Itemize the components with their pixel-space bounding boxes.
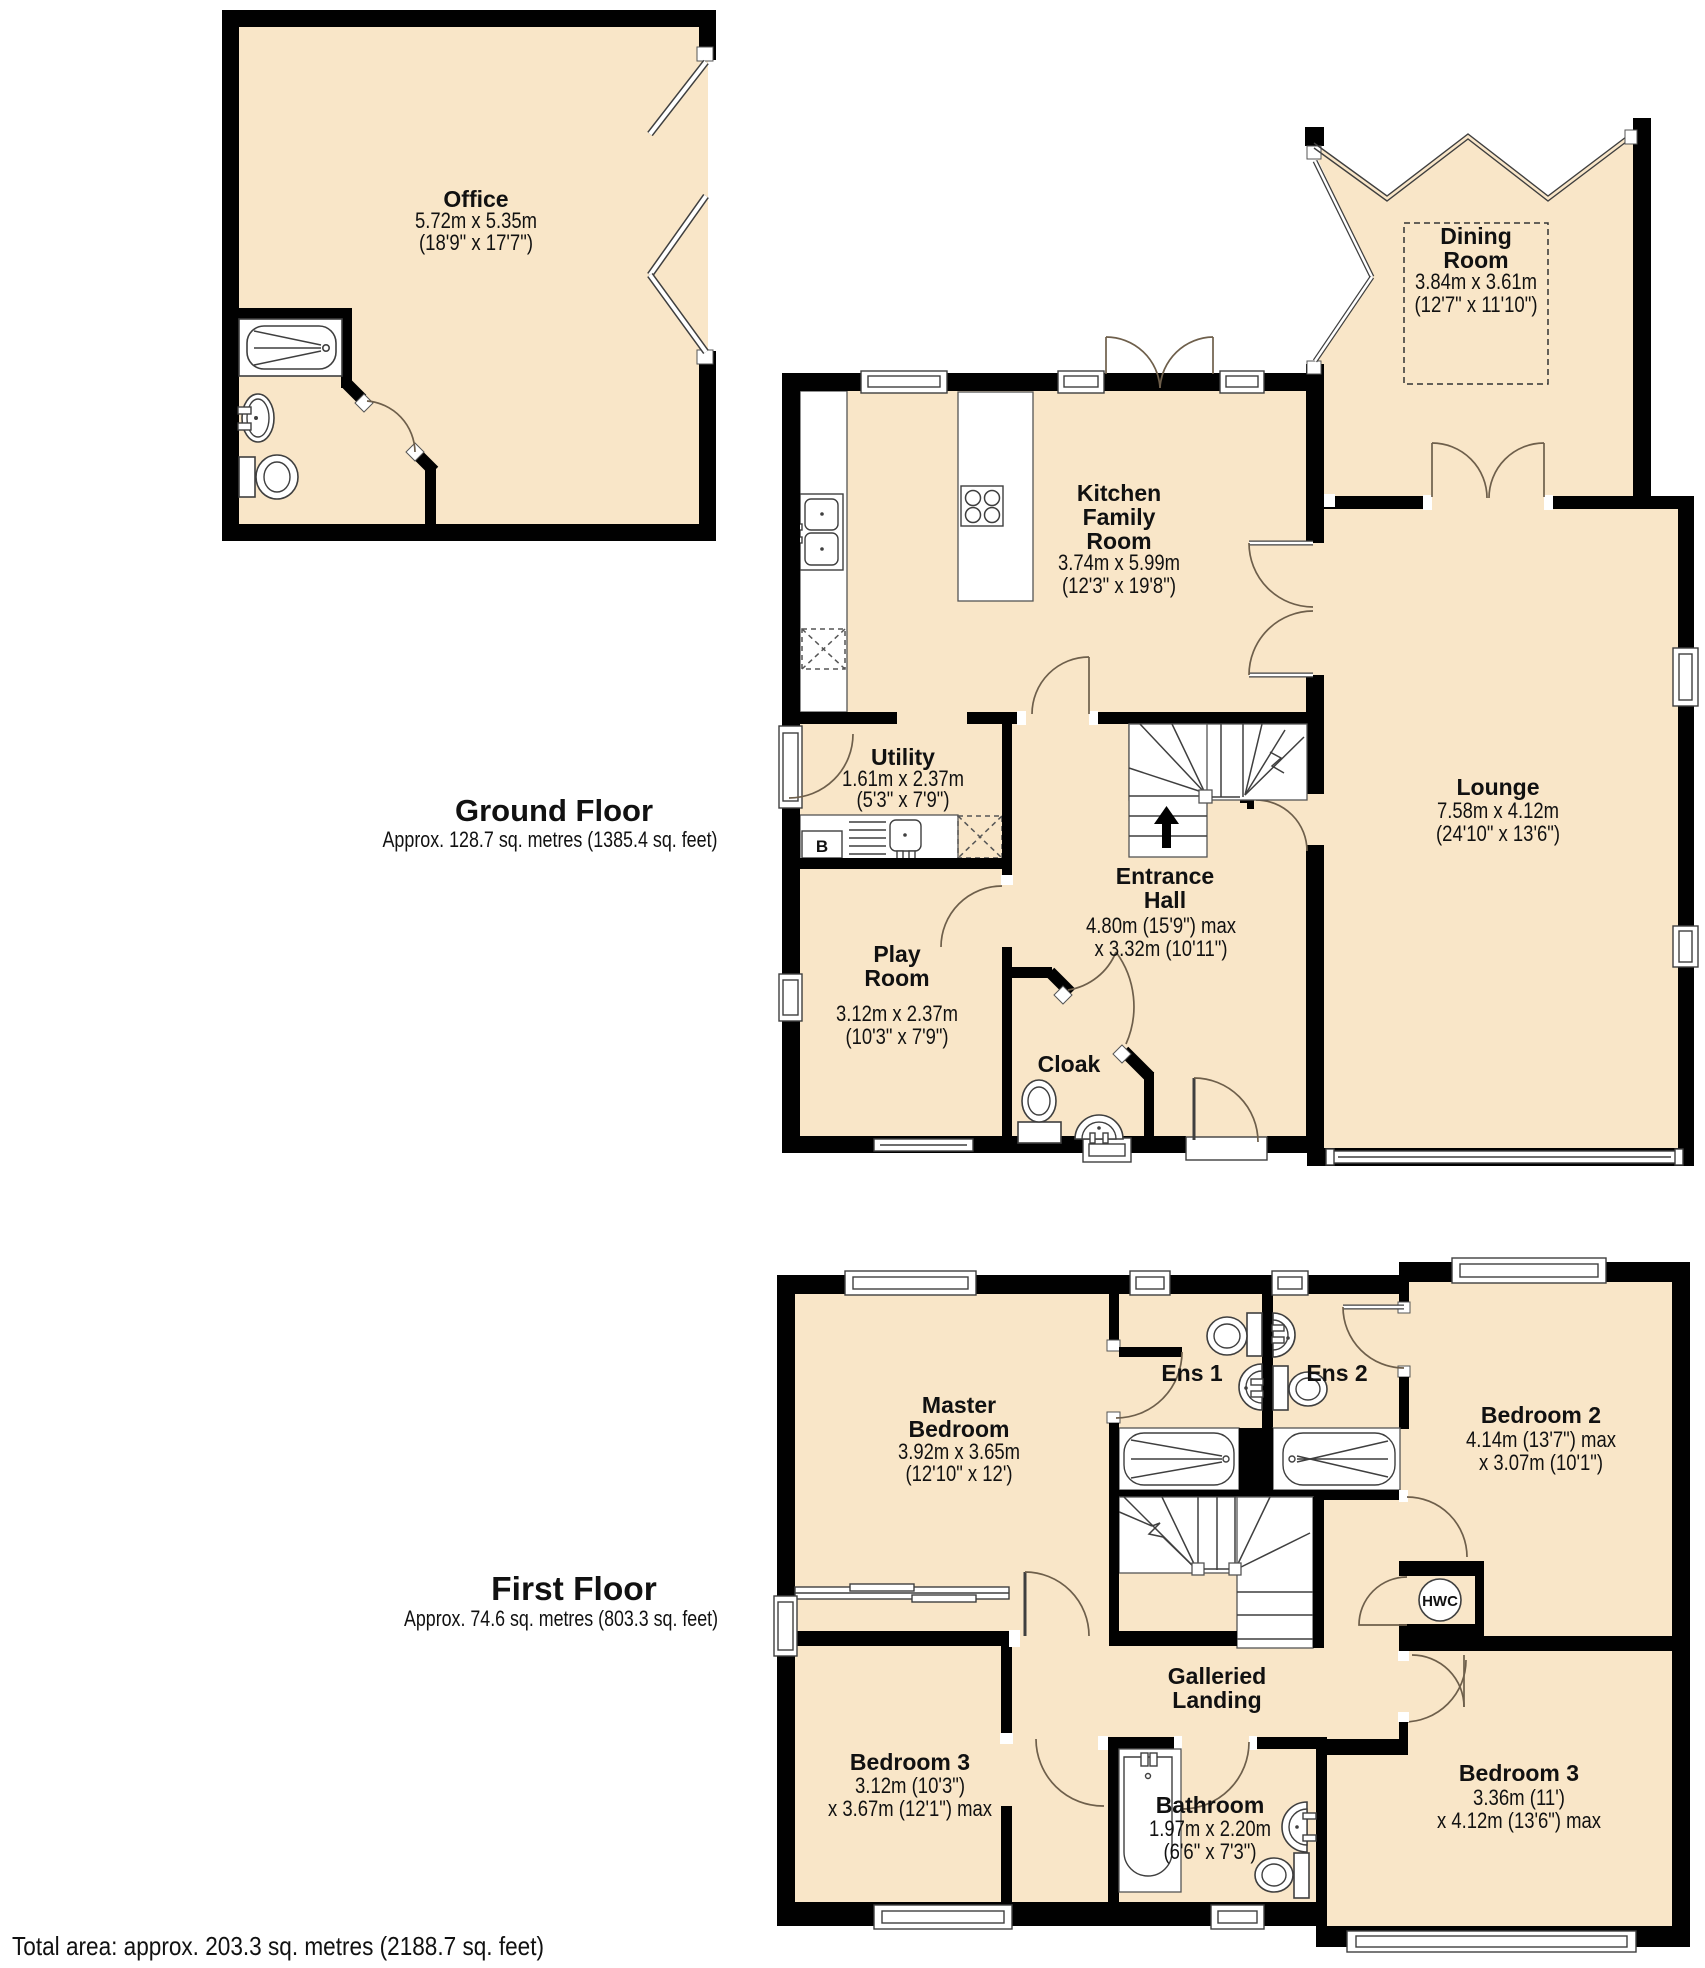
svg-text:HWC: HWC	[1422, 1593, 1458, 1610]
svg-text:(10'3" x 7'9"): (10'3" x 7'9")	[846, 1024, 949, 1049]
svg-text:Ground Floor: Ground Floor	[455, 793, 653, 828]
svg-text:Bedroom 3: Bedroom 3	[850, 1749, 970, 1775]
svg-text:Cloak: Cloak	[1038, 1051, 1101, 1077]
svg-text:Ens 1: Ens 1	[1161, 1360, 1223, 1386]
svg-text:3.12m (10'3"): 3.12m (10'3")	[855, 1773, 965, 1798]
svg-text:(12'3" x 19'8"): (12'3" x 19'8")	[1062, 573, 1176, 598]
svg-text:(5'3" x 7'9"): (5'3" x 7'9")	[857, 787, 950, 812]
svg-text:Play: Play	[873, 941, 921, 967]
svg-text:Landing: Landing	[1172, 1687, 1261, 1713]
svg-text:4.14m (13'7") max: 4.14m (13'7") max	[1466, 1427, 1616, 1452]
svg-text:Dining: Dining	[1440, 223, 1512, 249]
svg-text:(18'9" x 17'7"): (18'9" x 17'7")	[419, 230, 533, 255]
svg-text:1.97m x 2.20m: 1.97m x 2.20m	[1149, 1816, 1271, 1841]
svg-text:(24'10" x 13'6"): (24'10" x 13'6")	[1436, 821, 1560, 846]
svg-text:x 3.67m (12'1") max: x 3.67m (12'1") max	[828, 1796, 992, 1821]
svg-text:(12'10" x 12'): (12'10" x 12')	[906, 1461, 1013, 1486]
svg-text:x 3.32m (10'11"): x 3.32m (10'11")	[1095, 936, 1228, 961]
svg-text:(6'6" x 7'3"): (6'6" x 7'3")	[1164, 1839, 1257, 1864]
svg-text:Room: Room	[864, 965, 929, 991]
svg-text:x 3.07m (10'1"): x 3.07m (10'1")	[1479, 1450, 1603, 1475]
svg-text:First Floor: First Floor	[491, 1571, 657, 1608]
svg-text:Bedroom 3: Bedroom 3	[1459, 1760, 1579, 1786]
svg-text:Bathroom: Bathroom	[1156, 1792, 1265, 1818]
svg-text:Approx. 128.7 sq. metres (1385: Approx. 128.7 sq. metres (1385.4 sq. fee…	[383, 827, 718, 852]
svg-text:3.74m x 5.99m: 3.74m x 5.99m	[1058, 550, 1180, 575]
svg-text:Family: Family	[1083, 504, 1156, 530]
svg-text:B: B	[816, 837, 828, 856]
svg-text:(12'7" x 11'10"): (12'7" x 11'10")	[1415, 292, 1538, 317]
svg-text:3.84m x 3.61m: 3.84m x 3.61m	[1415, 269, 1537, 294]
svg-text:Entrance: Entrance	[1116, 863, 1214, 889]
svg-text:x 4.12m (13'6") max: x 4.12m (13'6") max	[1437, 1808, 1601, 1833]
svg-text:Total area: approx. 203.3 sq.: Total area: approx. 203.3 sq. metres (21…	[12, 1931, 544, 1961]
svg-text:Kitchen: Kitchen	[1077, 480, 1161, 506]
svg-text:Ens 2: Ens 2	[1306, 1360, 1367, 1386]
svg-text:Master: Master	[922, 1392, 996, 1418]
svg-text:3.12m x 2.37m: 3.12m x 2.37m	[836, 1001, 958, 1026]
svg-text:7.58m x 4.12m: 7.58m x 4.12m	[1437, 798, 1559, 823]
svg-text:Lounge: Lounge	[1456, 774, 1539, 800]
svg-text:Approx. 74.6 sq. metres (803.3: Approx. 74.6 sq. metres (803.3 sq. feet)	[404, 1606, 718, 1631]
svg-text:3.36m (11'): 3.36m (11')	[1473, 1785, 1565, 1810]
svg-text:Hall: Hall	[1144, 887, 1186, 913]
svg-text:4.80m (15'9") max: 4.80m (15'9") max	[1086, 913, 1236, 938]
svg-text:Bedroom 2: Bedroom 2	[1481, 1402, 1601, 1428]
svg-text:Galleried: Galleried	[1168, 1663, 1266, 1689]
